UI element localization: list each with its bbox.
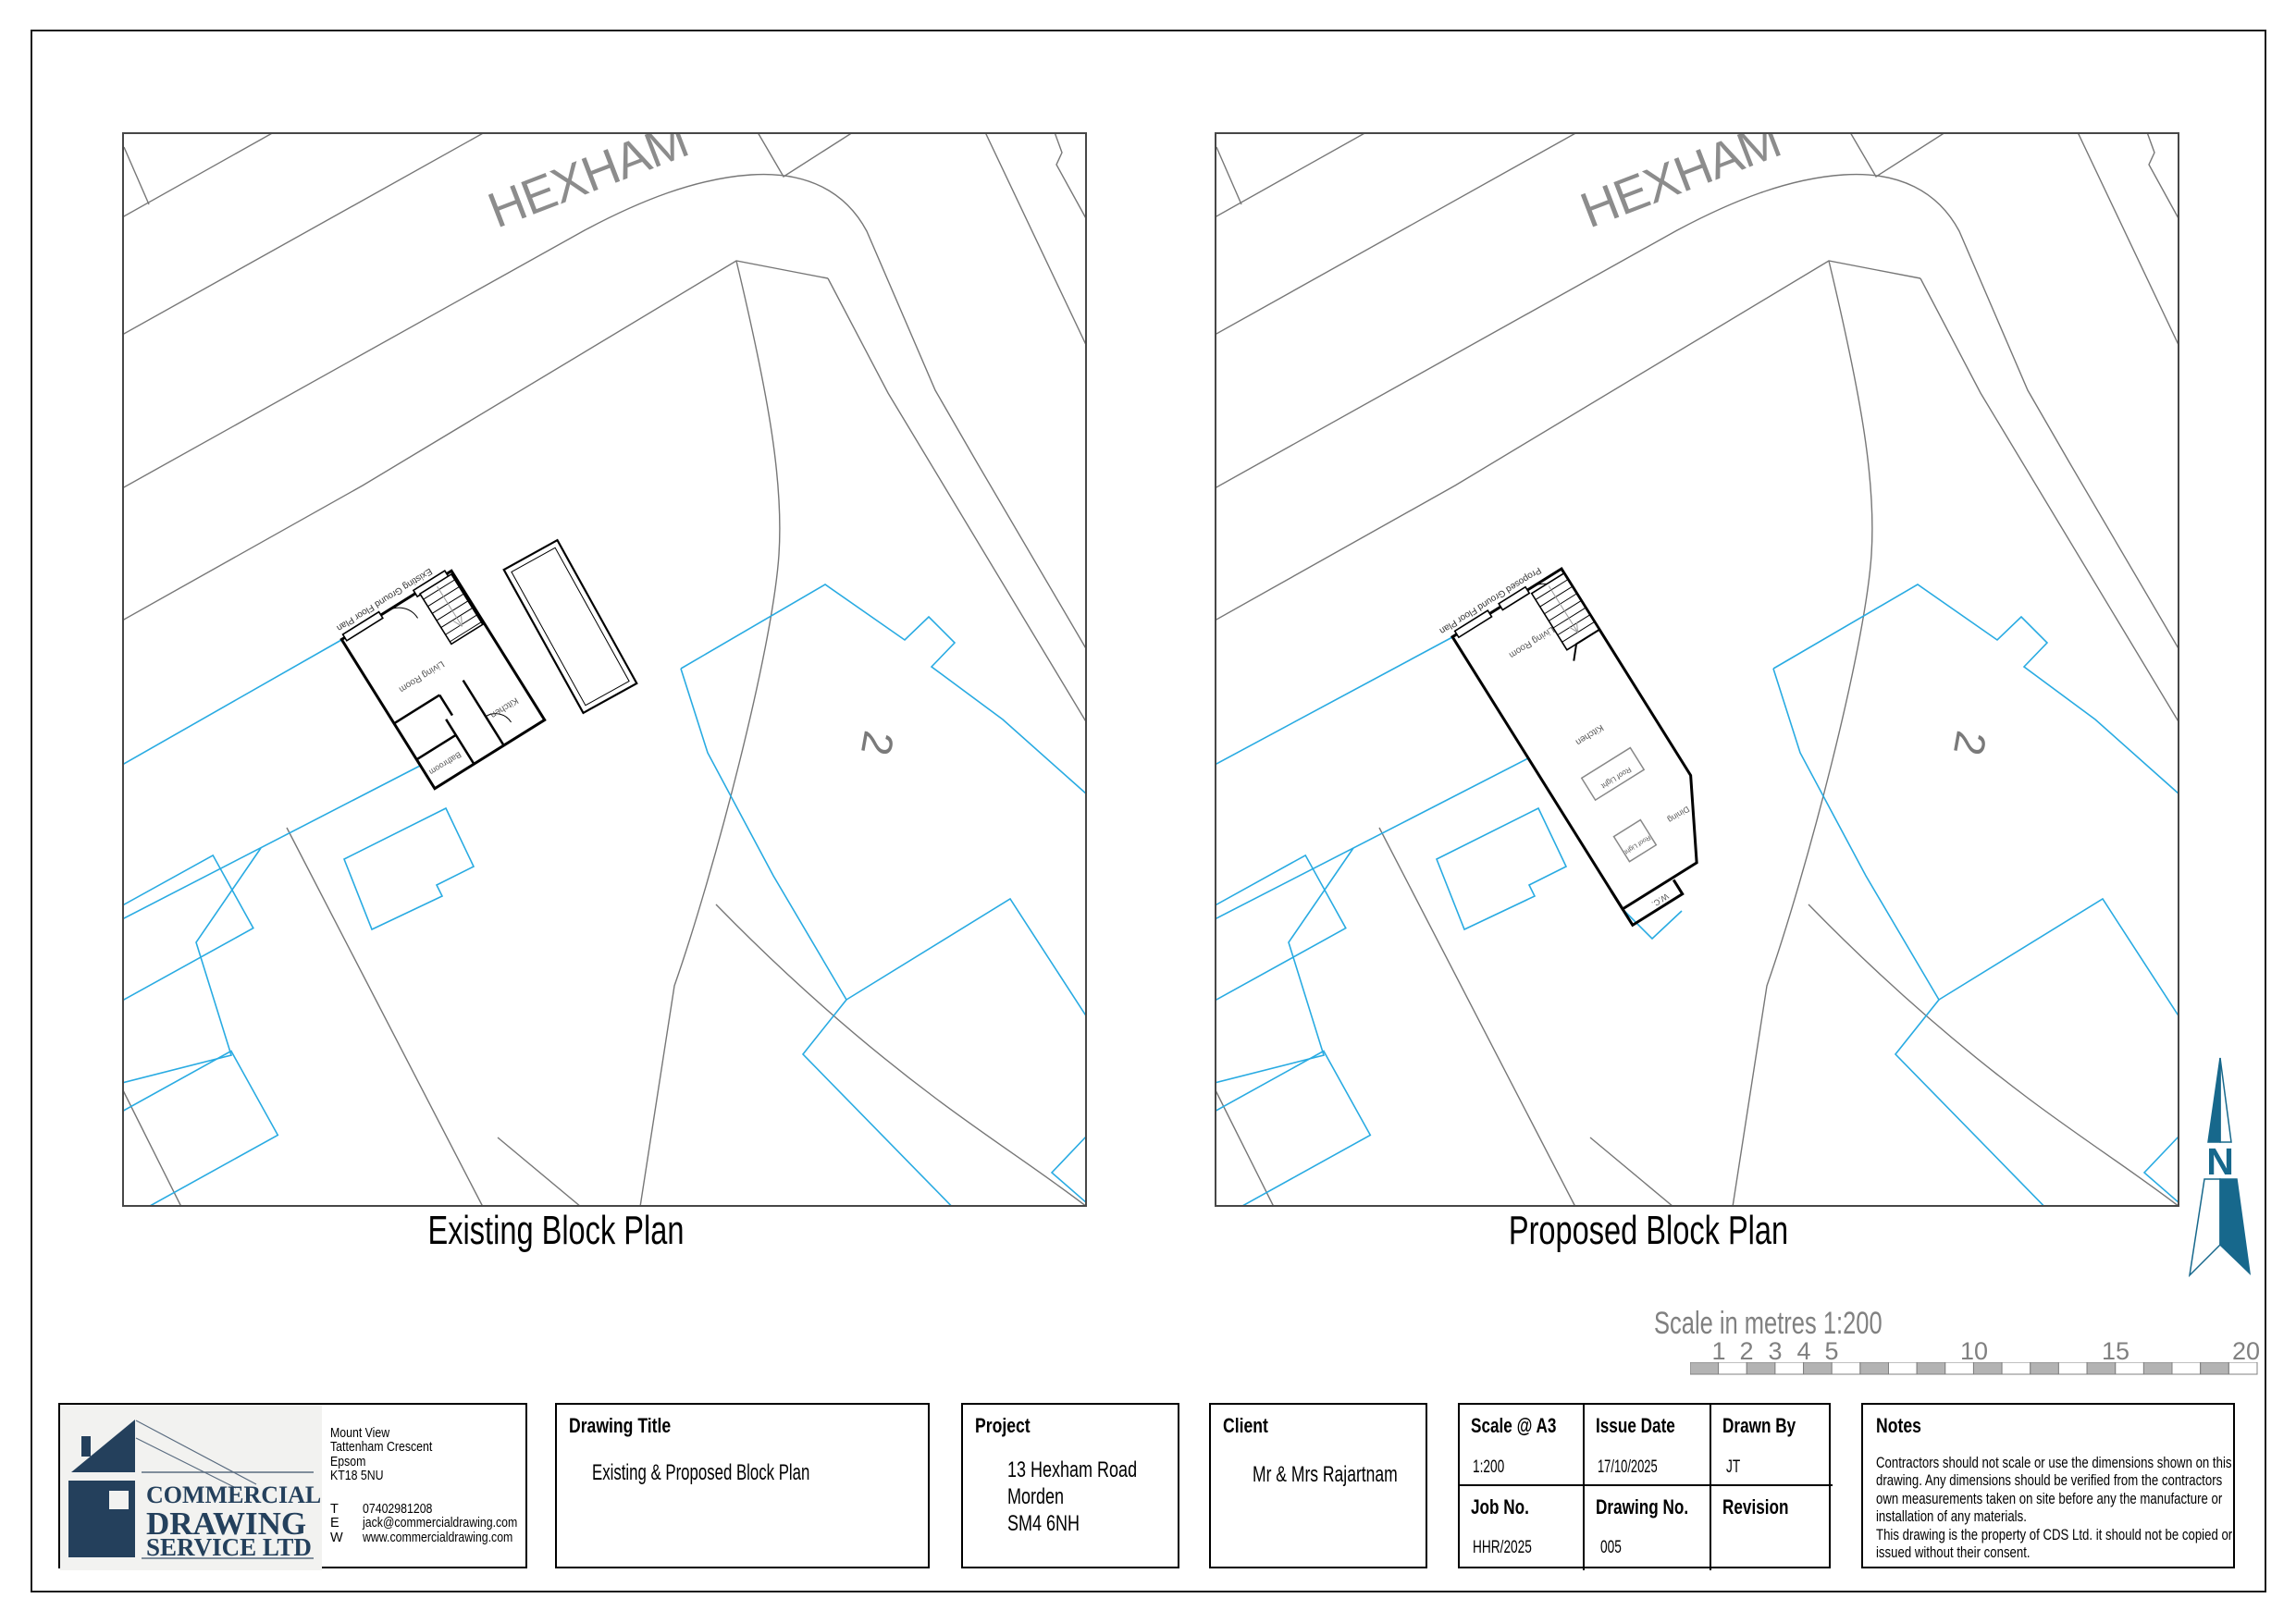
svg-text:SERVICE LTD: SERVICE LTD bbox=[146, 1533, 312, 1561]
svg-text:HEXHAM: HEXHAM bbox=[1574, 132, 1788, 239]
svg-text:2: 2 bbox=[1944, 728, 1996, 759]
svg-text:W.C.: W.C. bbox=[1650, 891, 1671, 909]
svg-text:COMMERCIAL: COMMERCIAL bbox=[146, 1482, 321, 1508]
svg-text:2: 2 bbox=[852, 728, 904, 759]
svg-text:HEXHAM: HEXHAM bbox=[481, 132, 696, 239]
svg-text:N: N bbox=[2206, 1140, 2234, 1183]
